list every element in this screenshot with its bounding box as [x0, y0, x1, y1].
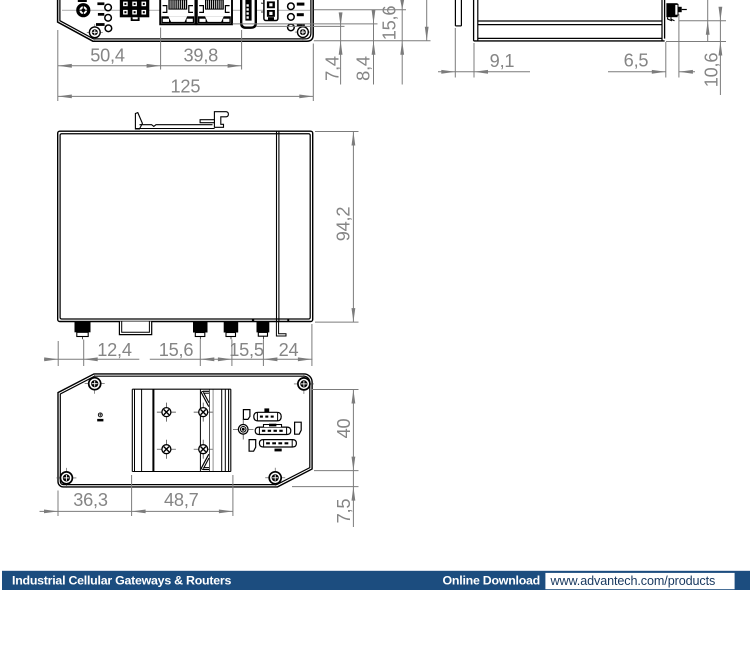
- svg-text:12,4: 12,4: [97, 340, 132, 360]
- svg-text:15,6: 15,6: [159, 340, 194, 360]
- svg-text:39,8: 39,8: [183, 45, 218, 65]
- svg-text:48,7: 48,7: [164, 490, 199, 510]
- svg-text:94,2: 94,2: [334, 207, 354, 242]
- svg-text:36,3: 36,3: [73, 490, 108, 510]
- svg-text:40: 40: [334, 419, 354, 439]
- svg-text:www.advantech.com/products: www.advantech.com/products: [550, 574, 716, 588]
- svg-text:7,5: 7,5: [334, 499, 354, 524]
- svg-text:125: 125: [171, 76, 201, 96]
- svg-text:Industrial Cellular Gateways &: Industrial Cellular Gateways & Routers: [12, 573, 231, 587]
- svg-text:24: 24: [279, 340, 299, 360]
- svg-text:9,1: 9,1: [490, 51, 515, 71]
- svg-text:Online Download: Online Download: [443, 573, 540, 587]
- svg-text:10,6: 10,6: [701, 53, 721, 88]
- svg-text:15,6: 15,6: [379, 6, 399, 41]
- svg-text:6,5: 6,5: [624, 51, 649, 71]
- svg-text:15,5: 15,5: [229, 340, 264, 360]
- svg-text:7,4: 7,4: [322, 56, 342, 81]
- svg-text:8,4: 8,4: [353, 56, 373, 81]
- svg-text:50,4: 50,4: [90, 45, 125, 65]
